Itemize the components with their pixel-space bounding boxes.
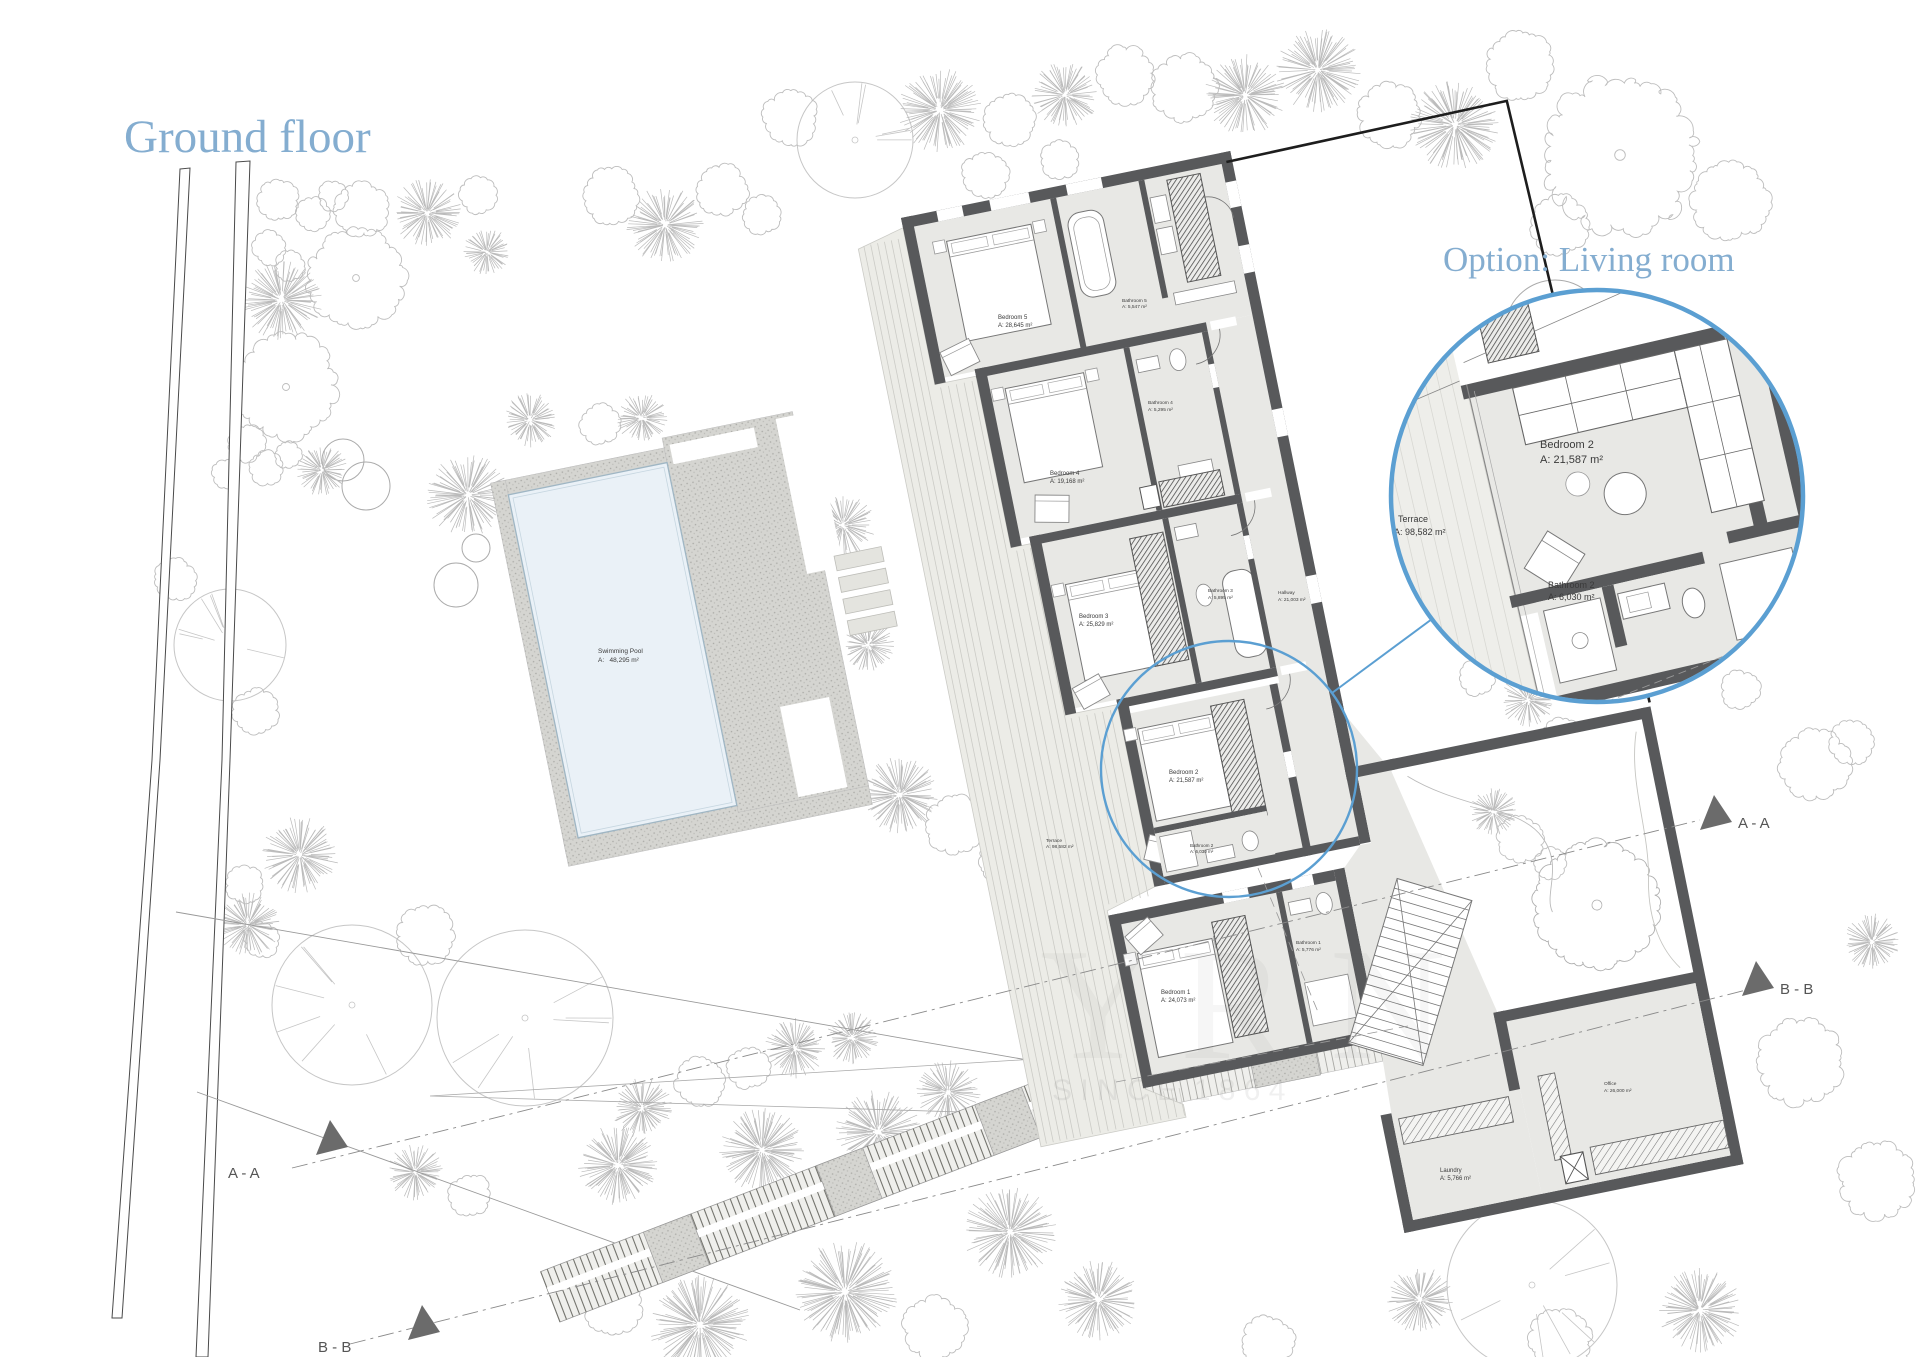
- svg-text:A: 5,547 m²: A: 5,547 m²: [1122, 304, 1147, 310]
- svg-text:A: 48,295 m²: A: 48,295 m²: [598, 657, 640, 664]
- svg-text:A: 6,030 m²: A: 6,030 m²: [1190, 849, 1214, 854]
- svg-text:Bedroom 2: Bedroom 2: [1540, 439, 1594, 451]
- svg-text:A: 5,895 m²: A: 5,895 m²: [1208, 595, 1233, 601]
- svg-text:A: 21,587 m²: A: 21,587 m²: [1169, 778, 1203, 784]
- svg-text:Bathroom 3: Bathroom 3: [1208, 588, 1233, 594]
- svg-text:Office: Office: [1604, 1081, 1617, 1087]
- svg-text:A - A: A - A: [228, 1165, 260, 1182]
- svg-text:A: 5,295 m²: A: 5,295 m²: [1148, 407, 1173, 413]
- svg-text:Bedroom 5: Bedroom 5: [998, 315, 1028, 321]
- svg-text:Terrace: Terrace: [1046, 838, 1062, 844]
- svg-text:Bathroom 4: Bathroom 4: [1148, 400, 1173, 406]
- svg-text:S I N C E 1 8 6 4: S I N C E 1 8 6 4: [1052, 1074, 1285, 1107]
- svg-text:Laundry: Laundry: [1440, 1168, 1462, 1174]
- svg-text:A: 6,030 m²: A: 6,030 m²: [1548, 592, 1595, 602]
- svg-text:A: 21,003 m²: A: 21,003 m²: [1278, 597, 1306, 603]
- svg-text:Terrace: Terrace: [1398, 514, 1428, 524]
- svg-text:Bedroom 3: Bedroom 3: [1079, 614, 1109, 620]
- svg-text:A: 26,000 m²: A: 26,000 m²: [1604, 1088, 1632, 1094]
- svg-text:Hallway: Hallway: [1278, 590, 1295, 596]
- svg-text:B - B: B - B: [1780, 981, 1813, 998]
- svg-text:A: 19,168 m²: A: 19,168 m²: [1050, 479, 1084, 485]
- svg-text:Bathroom 2: Bathroom 2: [1190, 843, 1214, 848]
- svg-text:A: 5,766 m²: A: 5,766 m²: [1440, 1176, 1471, 1182]
- svg-text:Swimming Pool: Swimming Pool: [598, 648, 643, 655]
- svg-text:Ground floor: Ground floor: [124, 111, 371, 163]
- svg-text:A: 98,582 m²: A: 98,582 m²: [1046, 844, 1074, 850]
- svg-text:Bedroom 2: Bedroom 2: [1169, 770, 1199, 776]
- svg-text:A - A: A - A: [1738, 815, 1770, 832]
- svg-text:A: 21,587 m²: A: 21,587 m²: [1540, 454, 1603, 466]
- svg-text:B - B: B - B: [318, 1339, 351, 1356]
- svg-text:Bathroom 1: Bathroom 1: [1296, 940, 1321, 946]
- svg-text:Option: Living room: Option: Living room: [1443, 240, 1735, 279]
- svg-text:R: R: [1180, 915, 1287, 1093]
- svg-text:Bedroom 4: Bedroom 4: [1050, 471, 1080, 477]
- svg-text:Y: Y: [1040, 915, 1156, 1093]
- svg-text:A: 25,829 m²: A: 25,829 m²: [1079, 622, 1113, 628]
- svg-text:Bathroom 2: Bathroom 2: [1548, 580, 1595, 590]
- svg-text:A: 5,776 m²: A: 5,776 m²: [1296, 947, 1321, 953]
- svg-text:A: 98,582 m²: A: 98,582 m²: [1394, 527, 1446, 537]
- svg-text:Bathroom 5: Bathroom 5: [1122, 298, 1147, 304]
- svg-text:A: 28,645 m²: A: 28,645 m²: [998, 323, 1032, 329]
- svg-text:N: N: [1330, 915, 1446, 1093]
